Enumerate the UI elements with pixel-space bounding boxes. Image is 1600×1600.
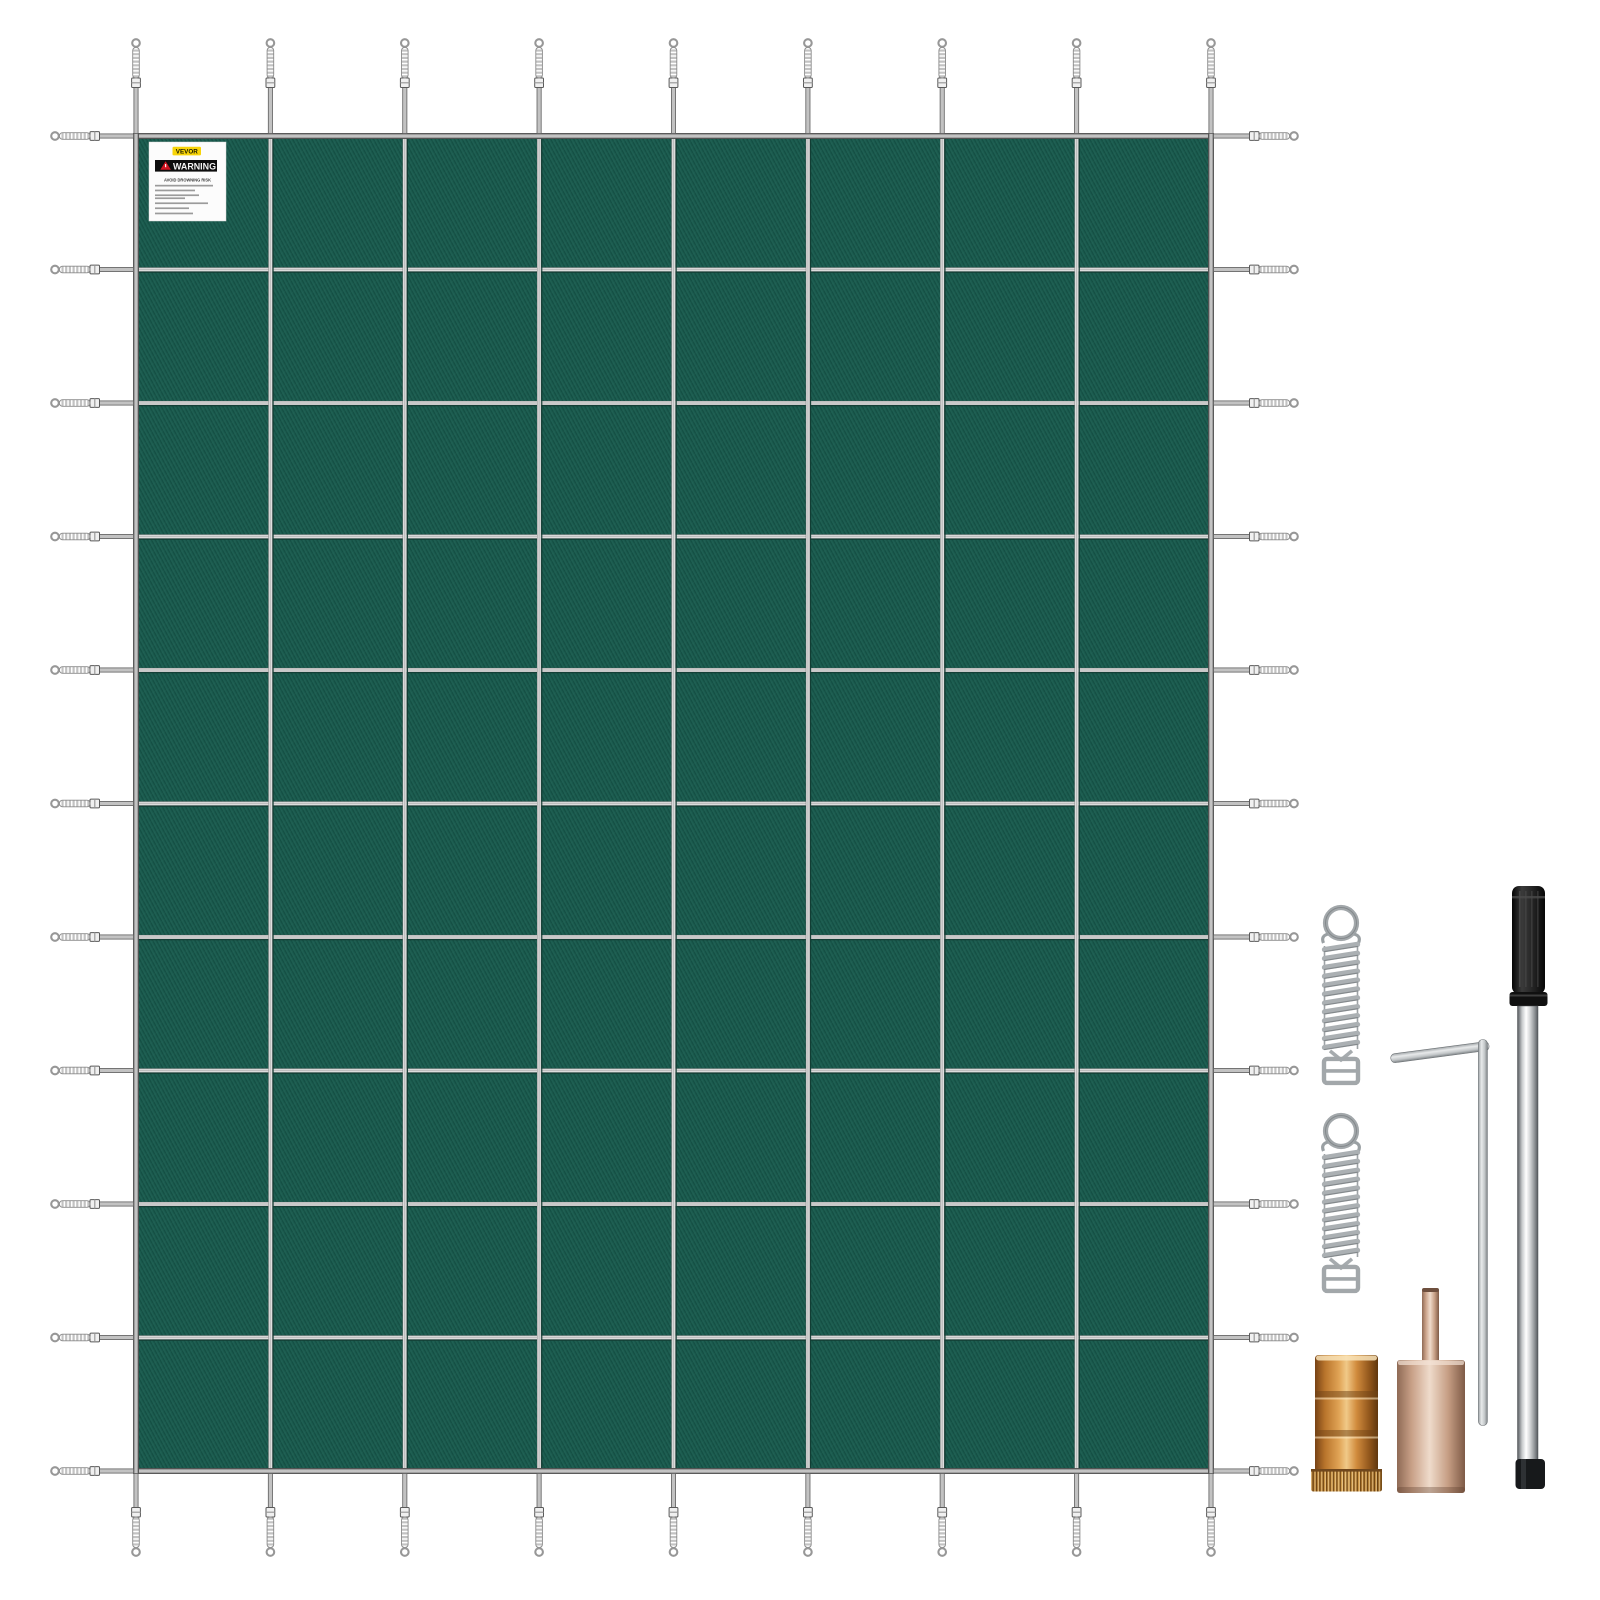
svg-text:VEVOR: VEVOR (176, 149, 199, 156)
svg-text:WARNING: WARNING (173, 160, 216, 171)
svg-text:AVOID DROWNING RISK: AVOID DROWNING RISK (164, 177, 212, 182)
